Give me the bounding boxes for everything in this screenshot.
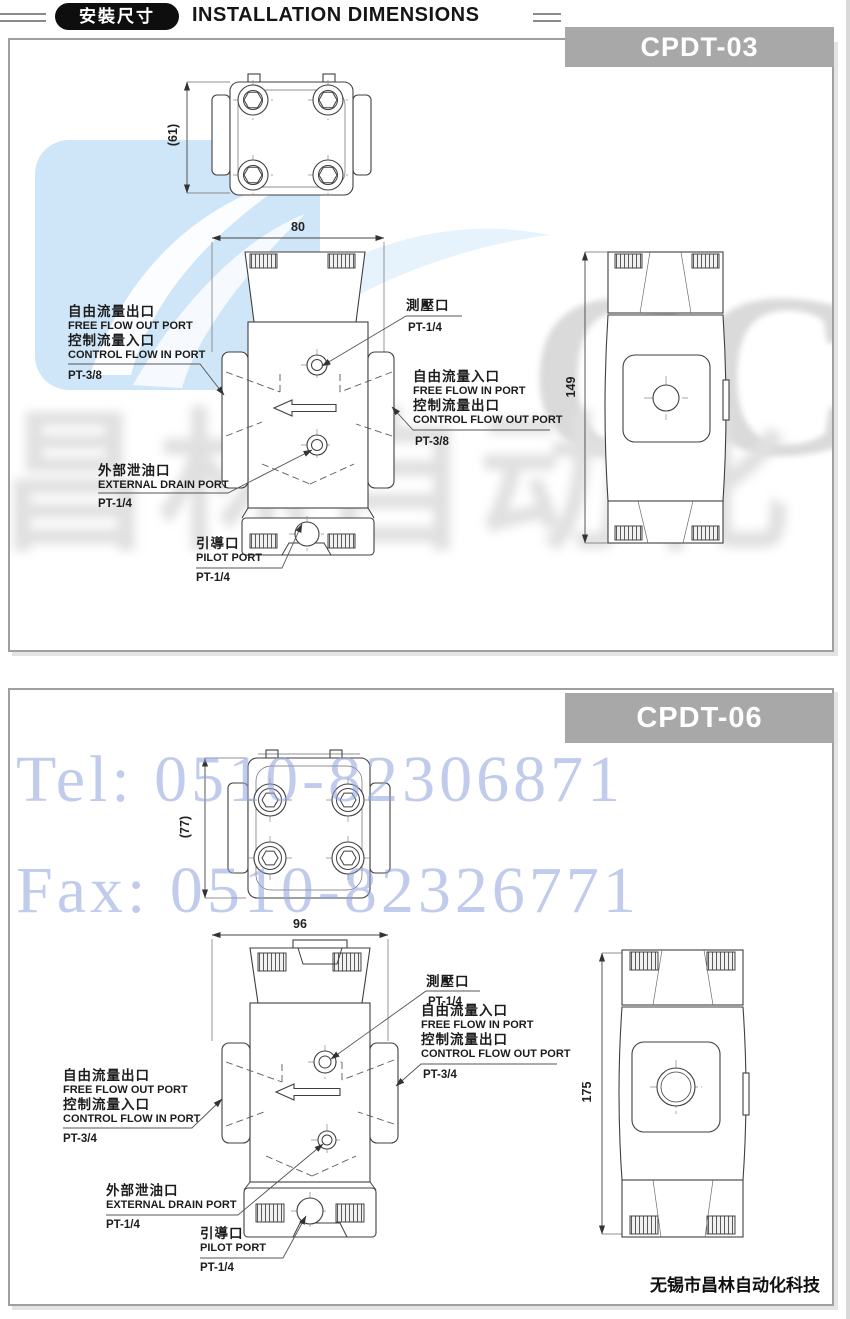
dim-height: 175	[580, 1062, 594, 1122]
top-view	[228, 750, 390, 898]
front-view	[222, 252, 394, 555]
label-gauge-port: 測壓口	[426, 974, 470, 990]
header-rule-right	[533, 13, 561, 22]
dim-width: 80	[268, 220, 328, 234]
panel-cpdt-06: 測壓口 PT-1/4 自由流量入口 FREE FLOW IN PORT 控制流量…	[8, 688, 834, 1306]
label-drain-port: 外部泄油口 EXTERNAL DRAIN PORT	[98, 463, 229, 492]
section-badge: 安裝尺寸	[55, 3, 179, 30]
label-right-port-size: PT-3/4	[423, 1069, 457, 1081]
top-view	[212, 74, 371, 195]
panel-cpdt-03: CCLair 昌林自动化	[8, 38, 834, 652]
label-left-port-size: PT-3/8	[68, 370, 102, 382]
label-drain-port-size: PT-1/4	[98, 498, 132, 510]
label-left-ports: 自由流量出口 FREE FLOW OUT PORT 控制流量入口 CONTROL…	[63, 1068, 200, 1126]
label-pilot-port: 引導口 PILOT PORT	[196, 536, 262, 565]
label-left-ports: 自由流量出口 FREE FLOW OUT PORT 控制流量入口 CONTROL…	[68, 304, 205, 362]
label-right-ports: 自由流量入口 FREE FLOW IN PORT 控制流量出口 CONTROL …	[413, 369, 563, 427]
label-pilot-port-size: PT-1/4	[200, 1262, 234, 1274]
model-title-cpdt03: CPDT-03	[565, 27, 834, 67]
dim-width: 96	[270, 917, 330, 931]
page-edge-shadow	[846, 0, 850, 1319]
label-right-port-size: PT-3/8	[415, 436, 449, 448]
dim-top-height: (61)	[166, 105, 180, 165]
front-view	[222, 940, 398, 1237]
dim-height: 149	[564, 357, 578, 417]
label-left-port-size: PT-3/4	[63, 1133, 97, 1145]
label-pilot-port: 引導口 PILOT PORT	[200, 1226, 266, 1255]
company-footer: 无锡市昌林自动化科技	[650, 1271, 820, 1296]
side-view	[619, 950, 749, 1237]
label-gauge-port-size: PT-1/4	[408, 322, 442, 334]
label-drain-port: 外部泄油口 EXTERNAL DRAIN PORT	[106, 1183, 237, 1212]
datasheet-page: 安裝尺寸 INSTALLATION DIMENSIONS CPDT-03 CPD…	[0, 0, 850, 1319]
label-right-ports: 自由流量入口 FREE FLOW IN PORT 控制流量出口 CONTROL …	[421, 1003, 571, 1061]
dim-top-height: (77)	[178, 797, 192, 857]
header-rule-left	[0, 13, 46, 22]
side-view	[605, 252, 729, 543]
label-gauge-port: 測壓口	[406, 298, 450, 314]
label-drain-port-size: PT-1/4	[106, 1219, 140, 1231]
model-title-cpdt06: CPDT-06	[565, 693, 834, 743]
page-title: INSTALLATION DIMENSIONS	[192, 4, 479, 27]
label-pilot-port-size: PT-1/4	[196, 572, 230, 584]
